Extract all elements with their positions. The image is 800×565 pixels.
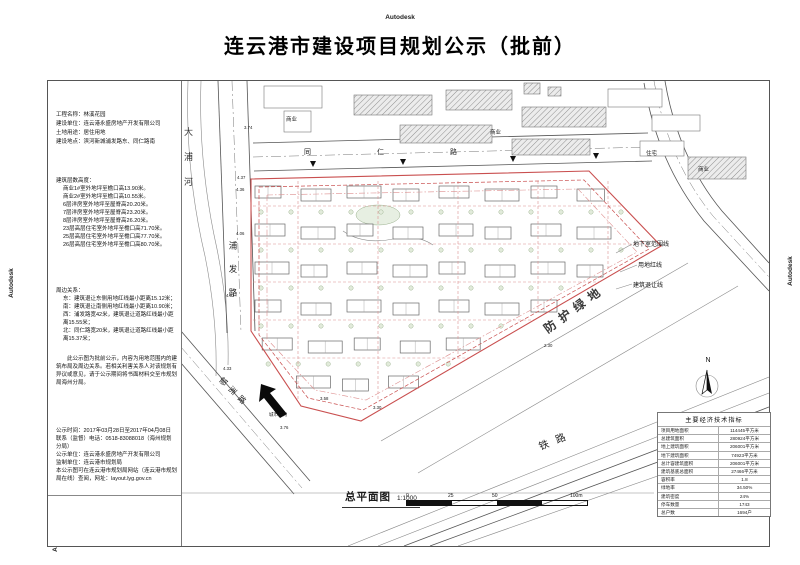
- info-line: 南：建筑退让南侧用地红线最小距离10.90米；: [56, 303, 177, 311]
- indicator-row: 总户数 1694户: [658, 508, 770, 516]
- indicator-value: 27466平方米: [719, 468, 770, 475]
- indicator-label: 总建筑面积: [658, 435, 719, 442]
- info-line: 本公示图可在连云港市规划局网站（连云港市规划局在线）查阅，网址：layout.l…: [56, 467, 177, 483]
- publicity-info-block: 公示时间：2017年03月28日至2017年04月08日联系（监督）电话：051…: [56, 427, 177, 483]
- river-dapu: [188, 81, 229, 376]
- spot-elevation: 4.32: [226, 293, 234, 298]
- scale-tick: 0: [406, 493, 409, 499]
- indicator-label: 项目用地面积: [658, 427, 719, 434]
- indicator-value: 34.50%: [719, 484, 770, 491]
- indicator-value: 1.8: [719, 476, 770, 483]
- city-direction-label: 城市方向: [269, 412, 287, 418]
- info-line: 建设单位：连云港永盛房地产开发有限公司: [56, 120, 177, 129]
- indicator-value: 206001平方米: [719, 443, 770, 450]
- info-line: 商业1#室外地坪至檐口高13.90米。: [56, 185, 177, 193]
- info-line: 6层洋房室外地坪至屋脊高20.20米。: [56, 201, 177, 209]
- indicators-table-title: 主要经济技术指标: [658, 413, 770, 426]
- scale-tick: 100m: [570, 493, 583, 499]
- indicator-row: 建筑基底总面积 27466平方米: [658, 467, 770, 475]
- spot-elevation: 3.58: [320, 396, 328, 401]
- scale-bar-segments: [406, 500, 588, 506]
- page-title: 连云港市建设项目规划公示（批前）: [0, 30, 800, 59]
- heights-title: 建筑层数高度：: [56, 177, 177, 185]
- indicator-row: 项目用地面积 114445平方米: [658, 426, 770, 434]
- heights-lines: 商业1#室外地坪至檐口高13.90米。商业2#室外地坪至檐口高10.55米。6层…: [56, 185, 177, 249]
- info-line: 8层洋房室外地坪至屋脊高26.20米。: [56, 217, 177, 225]
- road-yuzhou: [181, 331, 310, 494]
- north-label: N: [688, 357, 728, 364]
- indicators-table-body: 项目用地面积 114445平方米 总建筑面积 280924平方米 地上建筑面积 …: [658, 426, 770, 516]
- indicator-label: 停车数量: [658, 501, 719, 508]
- road-east-curved: [644, 81, 769, 291]
- info-line: 东：建筑退让东侧用地红线最小距离15.12米；: [56, 295, 177, 303]
- indicator-value: 206001平方米: [719, 460, 770, 467]
- planning-notice-page: Autodesk 连云港市建设项目规划公示（批前） Autodesk Autod…: [0, 0, 800, 565]
- commercial-area-label: 商业: [286, 115, 297, 123]
- indicator-row: 容积率 1.8: [658, 475, 770, 483]
- indicator-label: 总户数: [658, 509, 719, 516]
- indicator-value: 114445平方米: [719, 427, 770, 434]
- panel-divider-line: [48, 495, 181, 496]
- north-arrow-glyph: [696, 370, 718, 397]
- spot-elevation: 4.33: [223, 366, 231, 371]
- info-line: 北：同仁路宽20米，建筑退让道路红线最小距离15.37米；: [56, 327, 177, 343]
- drawing-frame: 工程名称：林溪花园建设单位：连云港永盛房地产开发有限公司土地用途：居住用地建设地…: [47, 80, 770, 547]
- indicator-row: 绿地率 34.50%: [658, 483, 770, 491]
- info-line: 25层高层住宅室外地坪至檐口高77.70米。: [56, 233, 177, 241]
- indicator-row: 停车数量 1743: [658, 500, 770, 508]
- spot-elevation: 3.30: [373, 405, 381, 410]
- info-panel: 工程名称：林溪花园建设单位：连云港永盛房地产开发有限公司土地用途：居住用地建设地…: [48, 81, 182, 546]
- info-line: 26层高层住宅室外地坪至檐口高80.70米。: [56, 241, 177, 249]
- spot-elevation: 3.74: [244, 125, 252, 130]
- info-line: 西：浦发路宽42米，建筑退让道路红线最小距离15.55米；: [56, 311, 177, 327]
- indicator-value: 24%: [719, 493, 770, 500]
- plan-title: 总平面图: [345, 491, 391, 503]
- info-line: 23层高层住宅室外地坪至檐口高71.70米。: [56, 225, 177, 233]
- indicator-label: 建筑基底总面积: [658, 468, 719, 475]
- indicator-row: 地上建筑面积 206001平方米: [658, 442, 770, 450]
- info-line: 7层洋房室外地坪至屋脊高23.20米。: [56, 209, 177, 217]
- spot-elevation: 3.76: [280, 425, 288, 430]
- indicator-value: 1743: [719, 501, 770, 508]
- info-line: 公示单位：连云港永盛房地产开发有限公司: [56, 451, 177, 459]
- building-heights-block: 建筑层数高度： 商业1#室外地坪至檐口高13.90米。商业2#室外地坪至檐口高1…: [56, 177, 177, 249]
- info-line: 建设地点：滨河新城浦发路东、同仁路南: [56, 138, 177, 147]
- indicator-row: 建筑密度 24%: [658, 492, 770, 500]
- river-dapu-label: 大浦河: [182, 127, 195, 202]
- legend-setback-line-label: 建筑退让线: [633, 280, 663, 289]
- indicator-label: 地上建筑面积: [658, 443, 719, 450]
- indicator-row: 总计容建筑面积 206001平方米: [658, 459, 770, 467]
- info-line: 土地用途：居住用地: [56, 129, 177, 138]
- residential-area-label: 住宅: [646, 149, 657, 157]
- indicator-label: 地下建筑面积: [658, 452, 719, 459]
- indicators-table: 主要经济技术指标 项目用地面积 114445平方米 总建筑面积 280924平方…: [657, 412, 771, 517]
- scale-bar-ticks: 0 25 50 100m: [406, 493, 588, 500]
- indicator-label: 建筑密度: [658, 493, 719, 500]
- notice-paragraph: 此公示图为批前公示，内容为用地范围内的建筑布局及周边关系。若相关利害关系人对该规…: [56, 355, 177, 387]
- indicator-label: 绿地率: [658, 484, 719, 491]
- road-pufa-label: 浦发路: [227, 241, 239, 312]
- surroundings-block: 周边关系： 东：建筑退让东侧用地红线最小距离15.12米；南：建筑退让南侧用地红…: [56, 287, 177, 343]
- info-line: 公示时间：2017年03月28日至2017年04月08日: [56, 427, 177, 435]
- scale-tick: 25: [448, 493, 454, 499]
- info-line: 工程名称：林溪花园: [56, 111, 177, 120]
- relations-lines: 东：建筑退让东侧用地红线最小距离15.12米；南：建筑退让南侧用地红线最小距离1…: [56, 295, 177, 343]
- spot-elevation: 2.30: [544, 343, 552, 348]
- spot-elevation: 4.37: [237, 175, 245, 180]
- indicator-value: 1694户: [719, 509, 770, 516]
- relations-title: 周边关系：: [56, 287, 177, 295]
- indicator-label: 容积率: [658, 476, 719, 483]
- indicator-row: 总建筑面积 280924平方米: [658, 434, 770, 442]
- scale-bar: 0 25 50 100m: [406, 493, 588, 506]
- north-arrow: N: [688, 357, 728, 364]
- legend-basement-line-label: 地下室范围线: [633, 239, 669, 248]
- project-info-block: 工程名称：林溪花园建设单位：连云港永盛房地产开发有限公司土地用途：居住用地建设地…: [56, 111, 177, 147]
- commercial-area-label: 商业: [490, 128, 501, 136]
- info-line: 监制单位：连云港市规划局: [56, 459, 177, 467]
- indicator-label: 总计容建筑面积: [658, 460, 719, 467]
- autodesk-watermark-top: Autodesk: [0, 14, 800, 21]
- spot-elevation: 4.06: [236, 231, 244, 236]
- autodesk-watermark-right: Autodesk: [787, 236, 797, 306]
- indicator-value: 74923平方米: [719, 452, 770, 459]
- scale-tick: 50: [492, 493, 498, 499]
- spot-elevation: 4.36: [236, 187, 244, 192]
- indicator-value: 280924平方米: [719, 435, 770, 442]
- indicator-row: 地下建筑面积 74923平方米: [658, 451, 770, 459]
- autodesk-watermark-left: Autodesk: [8, 248, 18, 318]
- road-tongren-label: 同仁路: [304, 147, 523, 157]
- info-line: 商业2#室外地坪至檐口高10.55米。: [56, 193, 177, 201]
- info-line: 联系（监督）电话：0518-83088018（海州规划分局）: [56, 435, 177, 451]
- commercial-area-label: 商业: [698, 165, 709, 173]
- legend-red-line-label: 用地红线: [638, 260, 662, 269]
